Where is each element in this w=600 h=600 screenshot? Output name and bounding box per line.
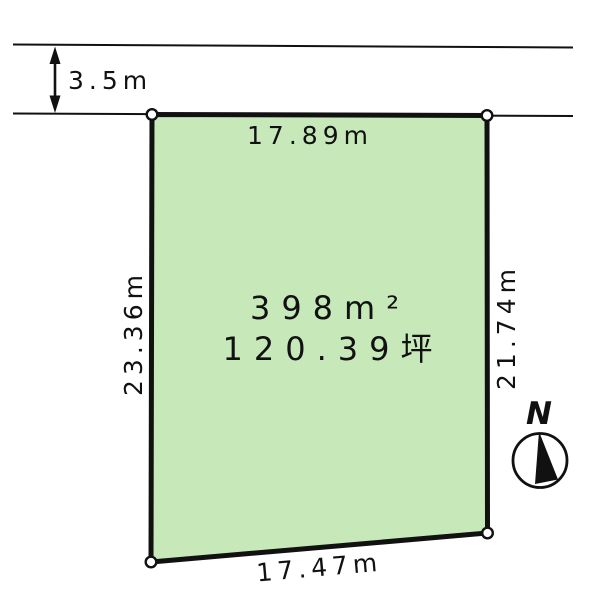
left-edge-dimension-label: 23.36m xyxy=(119,270,148,396)
corner-marker-bottom-left xyxy=(146,557,157,568)
north-label: N xyxy=(526,396,552,432)
land-plot-diagram: 3.5m 17.89m 23.36m 21.74m 17.47m 398m² 1… xyxy=(0,0,600,600)
diagram-svg: 3.5m 17.89m 23.36m 21.74m 17.47m 398m² 1… xyxy=(0,0,600,600)
right-edge-dimension-label: 21.74m xyxy=(492,264,521,390)
compass-icon: N xyxy=(513,396,567,488)
setback-arrow-head-up xyxy=(50,47,61,65)
setback-arrow-head-down xyxy=(50,96,61,114)
corner-marker-bottom-right xyxy=(482,528,493,539)
corner-marker-top-right xyxy=(482,110,493,121)
area-square-meters-label: 398m² xyxy=(250,289,410,327)
road-width-label: 3.5m xyxy=(68,66,152,95)
setback-arrow-icon xyxy=(50,47,61,114)
area-tsubo-label: 120.39坪 xyxy=(223,330,444,368)
top-edge-dimension-label: 17.89m xyxy=(247,121,373,150)
road-line-upper xyxy=(13,45,573,48)
corner-marker-top-left xyxy=(147,109,158,120)
